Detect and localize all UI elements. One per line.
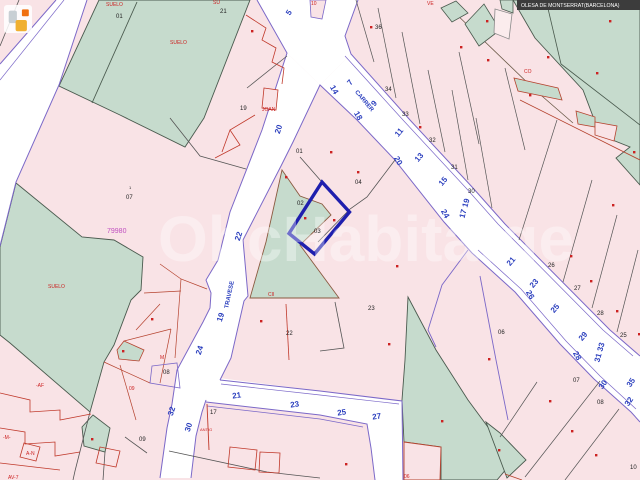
svg-text:CII: CII	[268, 292, 274, 298]
svg-text:09: 09	[139, 437, 146, 443]
svg-text:10: 10	[630, 465, 637, 471]
svg-text:01: 01	[116, 14, 123, 20]
svg-text:08: 08	[597, 400, 604, 406]
svg-text:04: 04	[355, 180, 362, 186]
svg-text:36: 36	[375, 25, 382, 31]
svg-text:CO: CO	[524, 69, 532, 75]
svg-text:06: 06	[498, 330, 505, 336]
svg-text:07: 07	[126, 195, 133, 201]
svg-text:27: 27	[574, 286, 581, 292]
svg-text:31: 31	[451, 165, 458, 171]
svg-text:25: 25	[620, 333, 627, 339]
svg-text:06: 06	[404, 474, 410, 480]
svg-text:02: 02	[297, 201, 304, 207]
svg-text:SUELO: SUELO	[170, 40, 187, 46]
svg-text:09: 09	[129, 386, 135, 392]
svg-text:28: 28	[597, 311, 604, 317]
svg-text:-AF: -AF	[36, 383, 44, 389]
svg-text:JOAN: JOAN	[262, 107, 276, 113]
svg-text:SUELO: SUELO	[106, 2, 123, 8]
svg-text:32: 32	[429, 138, 436, 144]
svg-text:79980: 79980	[107, 228, 127, 235]
svg-text:30: 30	[468, 189, 475, 195]
svg-text:23: 23	[368, 306, 375, 312]
svg-text:03: 03	[314, 229, 321, 235]
svg-text:07: 07	[573, 378, 580, 384]
svg-text:ANTIG: ANTIG	[200, 427, 212, 432]
svg-text:34: 34	[385, 87, 392, 93]
svg-text:27: 27	[372, 411, 383, 421]
svg-text:21: 21	[232, 390, 243, 400]
svg-text:M: M	[160, 355, 164, 361]
svg-text:AV-7: AV-7	[8, 475, 19, 480]
svg-text:01: 01	[296, 149, 303, 155]
svg-text:26: 26	[548, 263, 555, 269]
svg-text:-M-: -M-	[3, 435, 11, 441]
svg-text:SUELO: SUELO	[48, 284, 65, 290]
svg-text:10: 10	[311, 1, 317, 7]
svg-text:17: 17	[210, 410, 217, 416]
svg-text:SU: SU	[213, 0, 220, 6]
svg-text:21: 21	[220, 9, 227, 15]
svg-text:08: 08	[163, 370, 170, 376]
svg-text:A-N: A-N	[26, 451, 35, 457]
svg-text:23: 23	[290, 399, 301, 409]
svg-text:33: 33	[402, 112, 409, 118]
svg-text:22: 22	[286, 331, 293, 337]
svg-text:OLESA DE MONTSERRAT(BARCELONA): OLESA DE MONTSERRAT(BARCELONA)	[521, 3, 620, 9]
svg-text:VE: VE	[427, 1, 434, 7]
svg-text:25: 25	[337, 407, 348, 417]
svg-text:19: 19	[240, 106, 247, 112]
